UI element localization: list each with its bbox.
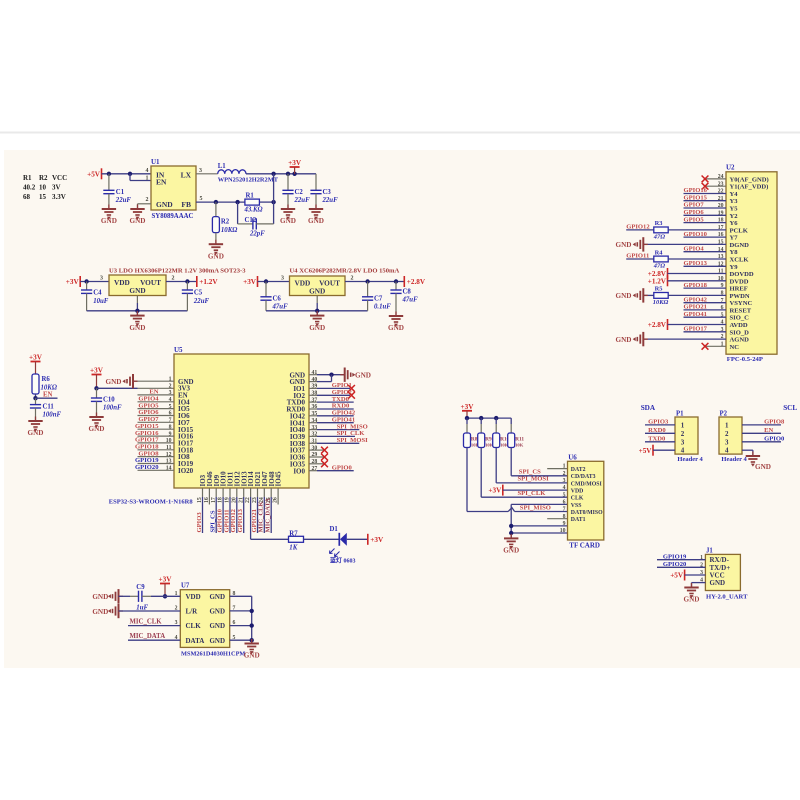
svg-text:EN: EN xyxy=(43,391,53,398)
svg-text:7: 7 xyxy=(563,507,566,513)
svg-text:3: 3 xyxy=(563,478,566,484)
svg-text:GPIO0: GPIO0 xyxy=(332,464,353,471)
svg-text:2: 2 xyxy=(172,276,175,282)
svg-text:2: 2 xyxy=(563,471,566,477)
svg-text:GND: GND xyxy=(106,378,122,386)
svg-text:43.KΩ: 43.KΩ xyxy=(244,206,263,213)
svg-text:3.3V: 3.3V xyxy=(52,193,66,201)
svg-text:P2: P2 xyxy=(720,410,728,417)
svg-text:R1: R1 xyxy=(23,174,32,182)
svg-text:4: 4 xyxy=(725,447,729,455)
svg-text:MIC_DATA: MIC_DATA xyxy=(265,498,272,533)
svg-text:Header 4: Header 4 xyxy=(677,456,703,463)
svg-text:XCLK: XCLK xyxy=(730,257,750,264)
svg-text:47Ω: 47Ω xyxy=(653,233,665,240)
svg-text:GND: GND xyxy=(280,217,296,225)
svg-text:68: 68 xyxy=(23,193,31,201)
svg-text:DATA: DATA xyxy=(186,637,205,645)
svg-text:GPIO42: GPIO42 xyxy=(684,296,708,303)
svg-text:5: 5 xyxy=(563,492,566,498)
svg-text:VSYNC: VSYNC xyxy=(730,300,753,307)
svg-text:C1: C1 xyxy=(116,189,125,196)
svg-text:PWDN: PWDN xyxy=(730,293,750,300)
svg-text:3: 3 xyxy=(281,276,284,282)
svg-text:C5: C5 xyxy=(194,290,203,297)
svg-text:3: 3 xyxy=(725,438,729,446)
svg-text:P1: P1 xyxy=(676,410,684,417)
svg-text:GND: GND xyxy=(710,579,726,587)
svg-text:HREF: HREF xyxy=(730,286,748,293)
svg-text:MIC_CLK: MIC_CLK xyxy=(130,618,163,625)
svg-text:SPI_MOSI: SPI_MOSI xyxy=(337,437,369,444)
svg-text:Y4: Y4 xyxy=(730,191,739,198)
svg-text:L/R: L/R xyxy=(186,608,199,616)
svg-text:U6: U6 xyxy=(568,453,577,461)
svg-text:GND: GND xyxy=(89,425,105,433)
svg-text:GND: GND xyxy=(209,622,225,630)
svg-text:TXD0: TXD0 xyxy=(648,436,666,443)
svg-text:Y1(AF_VDD): Y1(AF_VDD) xyxy=(730,184,769,191)
svg-text:J1: J1 xyxy=(706,548,713,555)
svg-text:GND: GND xyxy=(28,429,44,437)
svg-text:10: 10 xyxy=(39,184,47,192)
svg-text:GPIO13: GPIO13 xyxy=(684,260,708,267)
svg-text:SDA: SDA xyxy=(641,404,656,412)
svg-text:+1.2V: +1.2V xyxy=(199,278,218,286)
svg-text:GND: GND xyxy=(355,372,371,380)
svg-text:AGND: AGND xyxy=(730,337,750,344)
svg-text:GPIO17: GPIO17 xyxy=(684,326,708,333)
svg-text:GPIO13: GPIO13 xyxy=(237,508,244,532)
svg-text:GPIO20: GPIO20 xyxy=(663,561,687,568)
svg-text:HY-2.0_UART: HY-2.0_UART xyxy=(706,593,748,600)
svg-text:+3V: +3V xyxy=(288,159,302,167)
svg-text:L1: L1 xyxy=(218,163,227,170)
svg-text:GND: GND xyxy=(208,252,224,260)
svg-text:2: 2 xyxy=(146,197,149,203)
svg-text:9: 9 xyxy=(563,521,566,527)
svg-text:SPI_MISO: SPI_MISO xyxy=(520,504,551,511)
svg-text:GPIO4: GPIO4 xyxy=(684,245,705,252)
svg-text:10KΩ: 10KΩ xyxy=(653,299,669,306)
svg-text:22pF: 22pF xyxy=(249,230,265,237)
svg-text:+3V: +3V xyxy=(66,278,80,286)
svg-text:C4: C4 xyxy=(93,290,102,297)
svg-text:R4: R4 xyxy=(655,249,664,256)
svg-text:Y7: Y7 xyxy=(730,235,739,242)
svg-text:5: 5 xyxy=(200,196,203,202)
svg-text:+1.2V: +1.2V xyxy=(648,277,667,285)
svg-text:GND: GND xyxy=(388,324,404,332)
svg-text:U2: U2 xyxy=(726,163,735,171)
svg-text:GND: GND xyxy=(755,463,771,471)
svg-text:R11: R11 xyxy=(515,436,524,442)
svg-text:SPI_CS: SPI_CS xyxy=(519,469,541,476)
svg-text:3: 3 xyxy=(199,168,202,174)
svg-text:SPI_CLK: SPI_CLK xyxy=(518,490,547,497)
svg-text:SCL: SCL xyxy=(783,404,797,412)
svg-text:2: 2 xyxy=(169,383,172,389)
svg-text:ESP32-S3-WROOM-1-N16R8: ESP32-S3-WROOM-1-N16R8 xyxy=(109,499,194,506)
svg-text:C7: C7 xyxy=(374,296,383,303)
svg-text:+5V: +5V xyxy=(639,447,653,455)
svg-text:C8: C8 xyxy=(403,289,412,296)
svg-text:3: 3 xyxy=(681,438,685,446)
svg-text:GND: GND xyxy=(616,336,632,344)
svg-text:C10: C10 xyxy=(103,397,115,404)
svg-text:CMD/MOSI: CMD/MOSI xyxy=(571,481,603,487)
svg-text:C3: C3 xyxy=(323,189,332,196)
svg-text:SIO_D: SIO_D xyxy=(730,329,750,336)
svg-text:0.1uF: 0.1uF xyxy=(374,304,391,311)
svg-text:15: 15 xyxy=(39,193,47,201)
svg-text:AVDD: AVDD xyxy=(730,322,748,329)
svg-text:IO20: IO20 xyxy=(178,467,194,475)
svg-text:GPIO20: GPIO20 xyxy=(135,464,159,471)
svg-text:GND: GND xyxy=(129,324,145,332)
svg-text:+3V: +3V xyxy=(461,403,475,411)
svg-text:Y6: Y6 xyxy=(730,220,739,227)
svg-text:U3 LDO HX6306P122MR 1.2V 300: U3 LDO HX6306P122MR 1.2V 300mA SOT23-3 xyxy=(109,267,246,274)
svg-text:GPIO3: GPIO3 xyxy=(196,512,203,533)
svg-text:GND: GND xyxy=(156,200,173,209)
svg-text:GPIO18: GPIO18 xyxy=(684,282,708,289)
svg-text:22uF: 22uF xyxy=(115,197,132,204)
svg-text:100nF: 100nF xyxy=(103,405,122,412)
svg-text:SPI_MOSI: SPI_MOSI xyxy=(518,476,550,483)
svg-text:2: 2 xyxy=(681,430,685,438)
svg-text:8: 8 xyxy=(563,514,566,520)
svg-text:Y8: Y8 xyxy=(730,249,739,256)
svg-text:CLK: CLK xyxy=(571,496,584,502)
svg-text:WPN252012H2R2MT: WPN252012H2R2MT xyxy=(218,177,279,184)
svg-text:GND: GND xyxy=(209,637,225,645)
svg-text:MSM261D4030H1CPM: MSM261D4030H1CPM xyxy=(181,650,245,657)
svg-text:GND: GND xyxy=(309,286,325,295)
svg-text:GPIO0: GPIO0 xyxy=(764,436,785,443)
svg-text:RESET: RESET xyxy=(730,307,752,314)
svg-text:GPIO7: GPIO7 xyxy=(684,202,705,209)
svg-text:R1: R1 xyxy=(246,193,255,200)
svg-text:VDD: VDD xyxy=(571,489,584,495)
svg-text:47Ω: 47Ω xyxy=(653,263,665,270)
svg-text:DOVDD: DOVDD xyxy=(730,271,754,278)
svg-text:C12: C12 xyxy=(245,217,257,224)
svg-text:EN: EN xyxy=(156,178,167,187)
svg-text:MIC_DATA: MIC_DATA xyxy=(130,633,166,640)
svg-text:SIO_C: SIO_C xyxy=(730,315,750,322)
svg-text:GPIO8: GPIO8 xyxy=(764,419,785,426)
svg-text:GND: GND xyxy=(309,324,325,332)
svg-text:IO0: IO0 xyxy=(293,467,305,475)
svg-text:C11: C11 xyxy=(43,403,55,410)
svg-text:FB: FB xyxy=(181,200,191,209)
svg-text:VDD: VDD xyxy=(295,278,311,287)
svg-text:2: 2 xyxy=(725,430,729,438)
svg-text:1: 1 xyxy=(146,175,149,181)
svg-text:GND: GND xyxy=(92,593,108,601)
svg-text:GND: GND xyxy=(503,547,519,555)
svg-text:R6: R6 xyxy=(42,376,51,383)
svg-text:+2.8V: +2.8V xyxy=(648,321,667,329)
svg-text:CLK: CLK xyxy=(186,622,202,630)
svg-text:40.2: 40.2 xyxy=(23,184,36,192)
svg-text:4: 4 xyxy=(146,168,149,174)
svg-text:GND: GND xyxy=(684,596,700,604)
svg-text:VCC: VCC xyxy=(52,174,67,182)
svg-text:R9: R9 xyxy=(485,436,492,442)
svg-text:47uF: 47uF xyxy=(272,304,289,311)
svg-text:+3V: +3V xyxy=(488,487,502,495)
svg-text:GPIO19: GPIO19 xyxy=(663,553,687,560)
svg-text:3V: 3V xyxy=(52,184,61,192)
svg-text:R2: R2 xyxy=(39,174,48,182)
svg-text:GND: GND xyxy=(308,217,324,225)
svg-text:VDD: VDD xyxy=(114,278,130,287)
svg-text:4: 4 xyxy=(563,485,566,491)
svg-text:R7: R7 xyxy=(289,531,298,538)
svg-text:Y5: Y5 xyxy=(730,206,739,213)
svg-text:GPIO41: GPIO41 xyxy=(684,311,707,318)
svg-text:PCLK: PCLK xyxy=(730,227,749,234)
svg-text:+3V: +3V xyxy=(243,278,257,286)
svg-text:10K: 10K xyxy=(515,443,524,448)
svg-text:+5V: +5V xyxy=(87,170,101,178)
svg-text:C2: C2 xyxy=(295,189,304,196)
svg-text:10uF: 10uF xyxy=(93,298,109,305)
svg-text:LX: LX xyxy=(181,170,192,179)
svg-text:GPIO3: GPIO3 xyxy=(648,419,669,426)
svg-text:DAT0/MISO: DAT0/MISO xyxy=(571,510,603,516)
svg-text:VDD: VDD xyxy=(186,593,201,601)
svg-text:Y0(AF_GND): Y0(AF_GND) xyxy=(730,176,769,183)
svg-text:+3V: +3V xyxy=(370,536,384,544)
svg-text:IO45: IO45 xyxy=(275,471,283,487)
svg-text:C9: C9 xyxy=(136,584,145,591)
svg-text:DGND: DGND xyxy=(730,242,750,249)
svg-text:+3V: +3V xyxy=(159,576,173,584)
svg-text:100nF: 100nF xyxy=(43,411,62,418)
svg-text:6: 6 xyxy=(563,500,566,506)
svg-text:Y9: Y9 xyxy=(730,264,739,271)
svg-text:22uF: 22uF xyxy=(294,197,311,204)
svg-text:FPC-0.5-24P: FPC-0.5-24P xyxy=(727,356,763,363)
svg-text:+5V: +5V xyxy=(670,572,684,580)
svg-text:GND: GND xyxy=(92,608,108,616)
svg-text:GND: GND xyxy=(209,608,225,616)
svg-text:蓝灯 0603: 蓝灯 0603 xyxy=(330,557,356,565)
svg-text:+3V: +3V xyxy=(90,367,104,375)
svg-text:4: 4 xyxy=(681,447,685,455)
svg-text:1: 1 xyxy=(563,464,566,470)
svg-text:GND: GND xyxy=(129,286,145,295)
svg-text:NC: NC xyxy=(730,344,740,351)
svg-text:C6: C6 xyxy=(273,296,282,303)
svg-text:U7: U7 xyxy=(181,583,190,590)
svg-text:R5: R5 xyxy=(655,286,663,293)
svg-text:+3V: +3V xyxy=(29,354,43,362)
svg-text:U1: U1 xyxy=(151,158,160,166)
svg-text:R8: R8 xyxy=(471,436,478,442)
svg-text:DAT1: DAT1 xyxy=(571,517,586,523)
svg-text:D1: D1 xyxy=(330,526,339,533)
svg-text:DVDD: DVDD xyxy=(730,278,749,285)
svg-text:VSS: VSS xyxy=(571,503,582,509)
svg-text:GND: GND xyxy=(130,217,146,225)
svg-text:Y3: Y3 xyxy=(730,198,739,205)
svg-text:GND: GND xyxy=(101,217,117,225)
svg-text:GPIO6: GPIO6 xyxy=(684,209,705,216)
svg-text:EN: EN xyxy=(764,427,773,434)
svg-text:Y2: Y2 xyxy=(730,213,739,220)
svg-text:SY8089AAAC: SY8089AAAC xyxy=(152,213,194,220)
svg-text:GPIO15: GPIO15 xyxy=(684,194,708,201)
svg-text:10KΩ: 10KΩ xyxy=(221,227,237,234)
svg-text:GND: GND xyxy=(244,652,260,660)
svg-text:1: 1 xyxy=(681,421,685,429)
svg-text:10: 10 xyxy=(560,528,566,534)
svg-text:DAT2: DAT2 xyxy=(571,467,586,473)
svg-text:22uF: 22uF xyxy=(193,298,210,305)
svg-text:R2: R2 xyxy=(221,219,230,226)
svg-text:Header 4: Header 4 xyxy=(721,456,747,463)
svg-text:GPIO16: GPIO16 xyxy=(684,187,708,194)
svg-text:U5: U5 xyxy=(174,346,183,354)
svg-text:U4 XC6206P282MR/2.8V LDO 150: U4 XC6206P282MR/2.8V LDO 150mA xyxy=(290,267,400,274)
svg-text:TF CARD: TF CARD xyxy=(569,542,600,550)
svg-text:R3: R3 xyxy=(655,220,663,227)
svg-text:1K: 1K xyxy=(289,544,297,551)
svg-text:CD/DAT3: CD/DAT3 xyxy=(571,474,596,480)
svg-text:RXD0: RXD0 xyxy=(648,427,666,434)
svg-text:GPIO5: GPIO5 xyxy=(684,216,705,223)
svg-text:+2.8V: +2.8V xyxy=(407,278,426,286)
svg-text:1: 1 xyxy=(725,421,729,429)
svg-text:GPIO10: GPIO10 xyxy=(684,231,708,238)
svg-text:GND: GND xyxy=(616,292,632,300)
svg-text:GND: GND xyxy=(209,593,225,601)
svg-text:GND: GND xyxy=(616,241,632,249)
svg-text:3: 3 xyxy=(100,276,103,282)
svg-text:22uF: 22uF xyxy=(322,197,339,204)
svg-text:GPIO21: GPIO21 xyxy=(684,304,707,311)
svg-text:2: 2 xyxy=(351,276,354,282)
svg-text:47uF: 47uF xyxy=(402,297,419,304)
